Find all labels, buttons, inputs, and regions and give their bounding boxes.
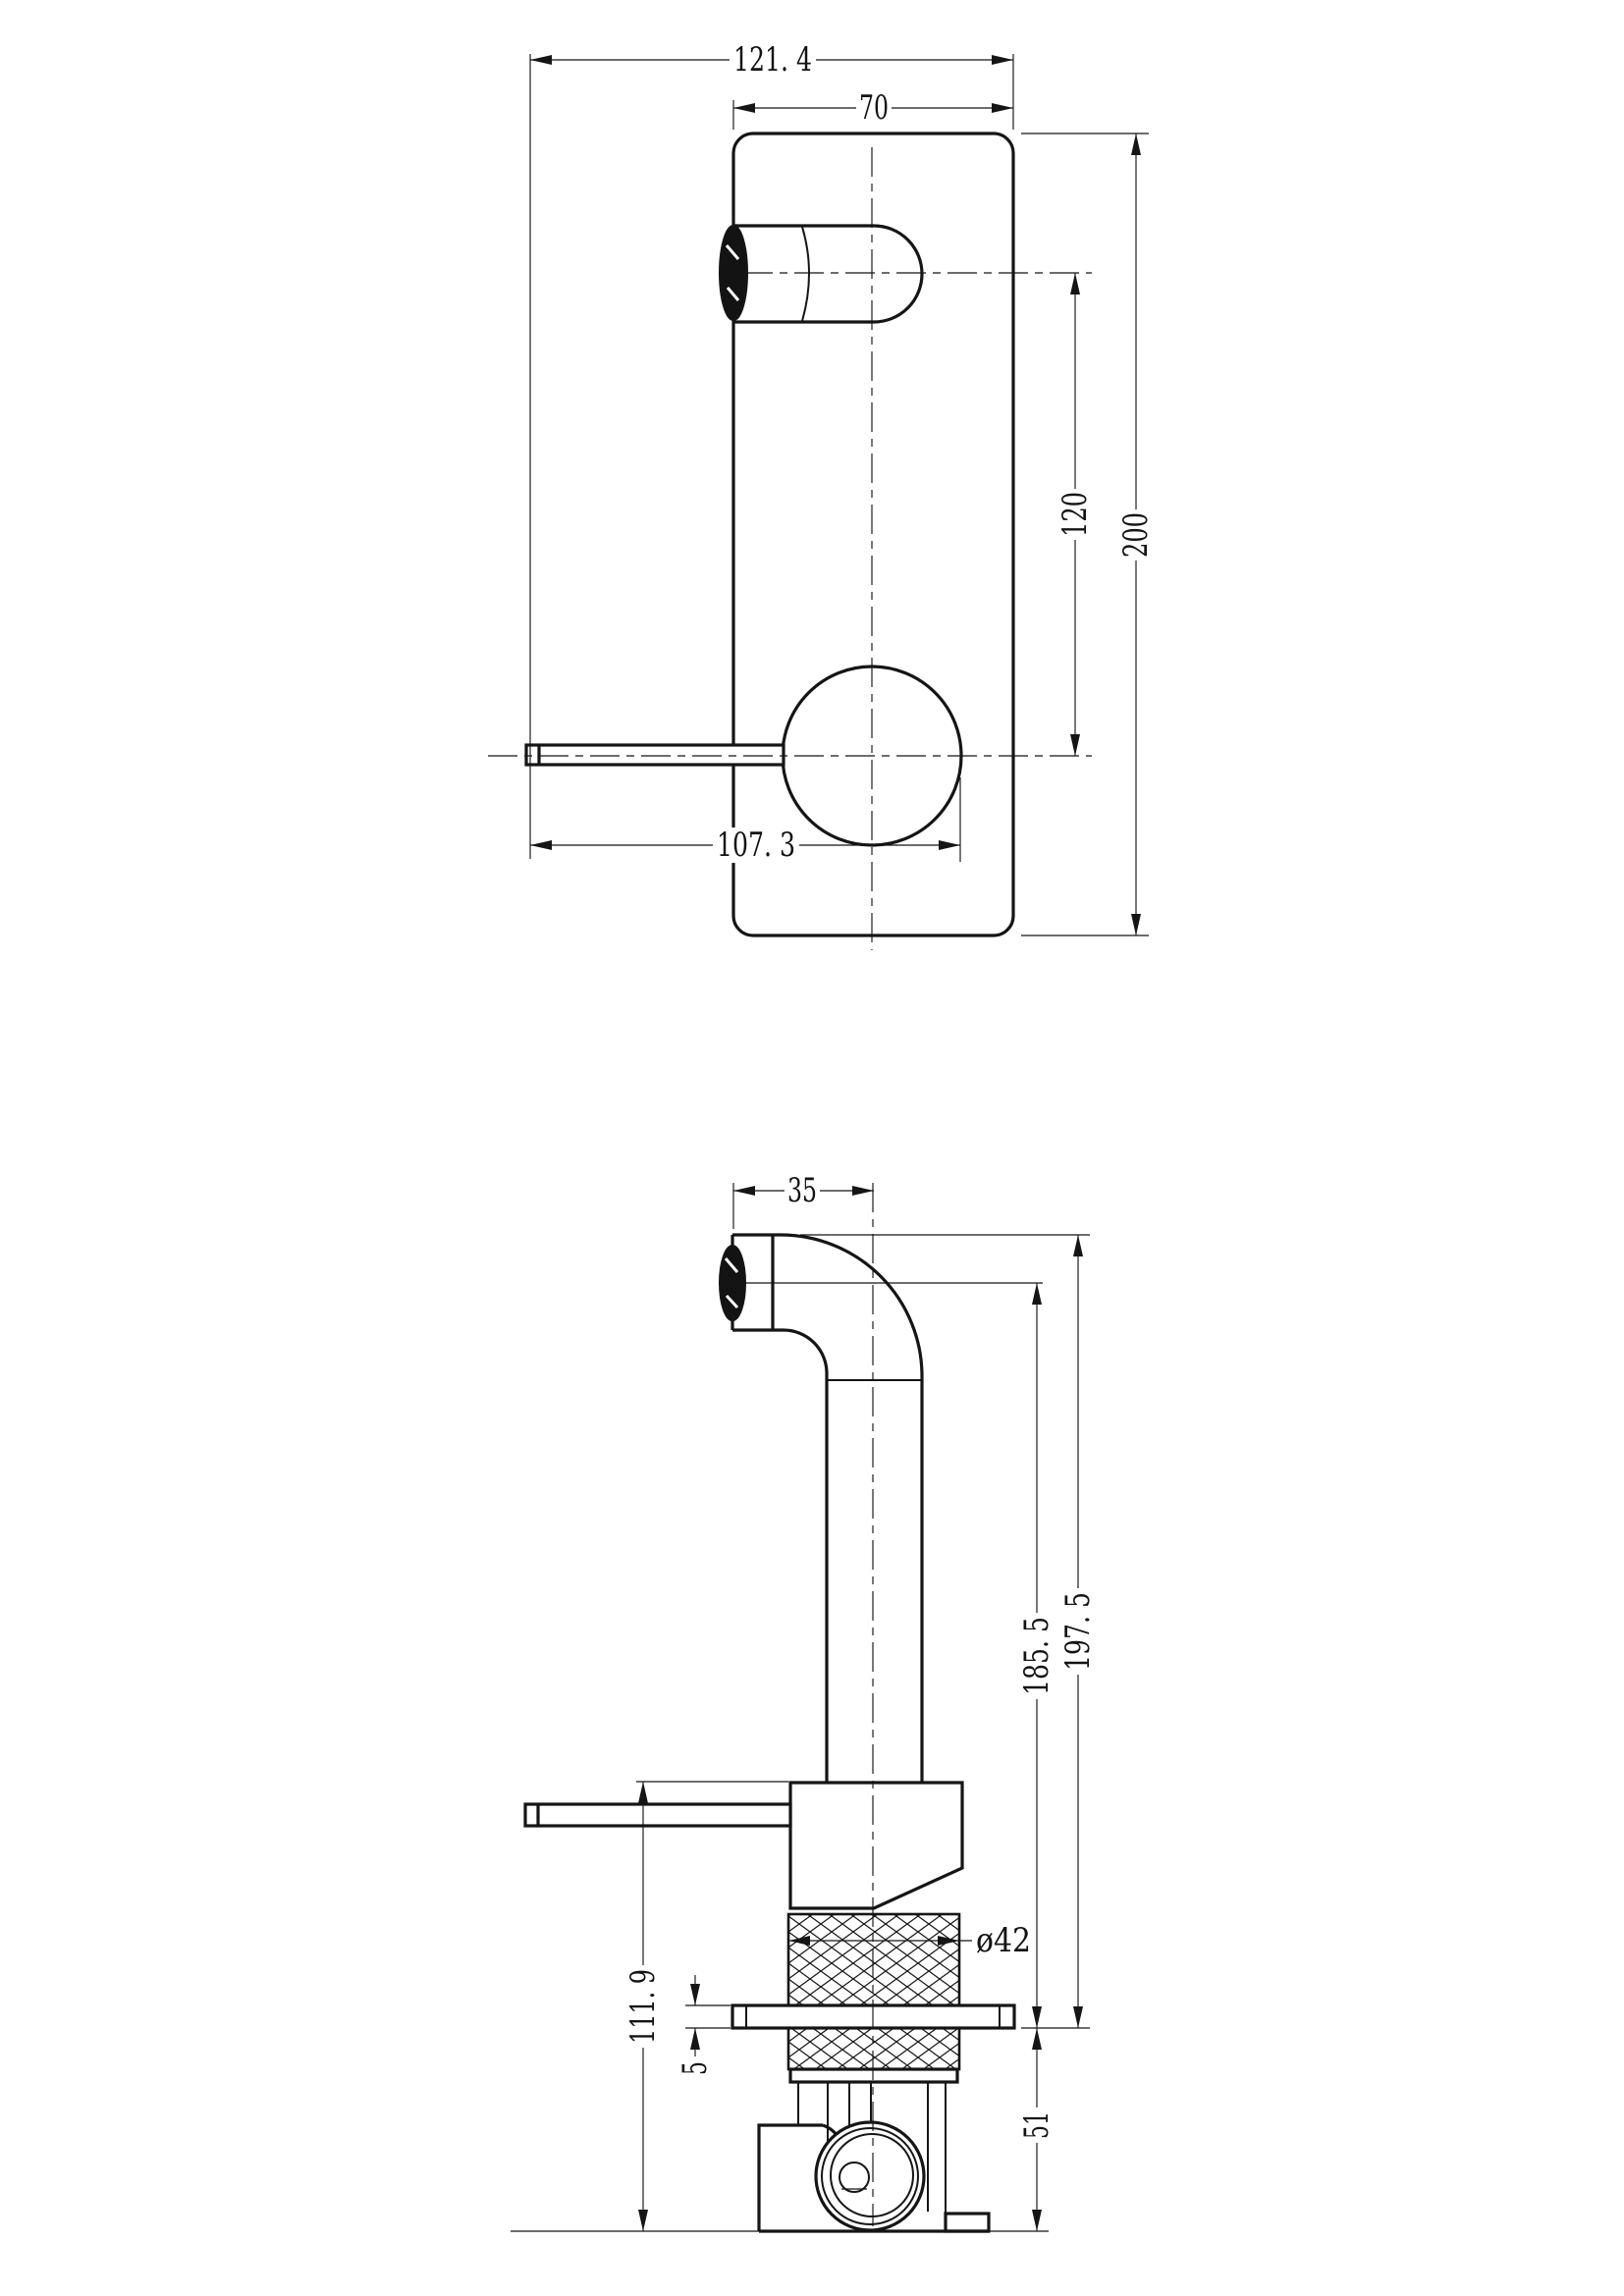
dim-rear-depth: 51	[1017, 2108, 1056, 2143]
dim-spout-projection-label: 35	[787, 1171, 817, 1210]
sleeve-base-ring	[790, 2069, 957, 2082]
cartridge-circle-outer	[816, 2122, 924, 2230]
dim-valve-height: 111. 9	[623, 1965, 663, 2048]
cartridge-keyway	[839, 2163, 869, 2192]
dim-spout-to-handle: 120	[1056, 489, 1095, 540]
dim-plate-thickness: 5	[676, 2056, 715, 2080]
dim-handle-reach: 107. 3	[713, 826, 799, 865]
dim-trim-diameter-label: ø42	[976, 1921, 1031, 1960]
aerator-face-front	[720, 226, 747, 320]
dim-spout-projection: 35	[785, 1171, 820, 1210]
front-view: 121. 4 70 120 200 107. 3	[488, 40, 1156, 950]
dim-height-spout-center-label: 185. 5	[1017, 1617, 1056, 1695]
knurled-sleeve-upper	[788, 1914, 959, 2005]
dim-spout-to-handle-label: 120	[1056, 492, 1095, 537]
dim-height-spout-top: 197. 5	[1058, 1588, 1098, 1675]
handle-lever-front	[526, 745, 784, 765]
dim-overall-width: 121. 4	[730, 40, 816, 80]
dim-handle-reach-label: 107. 3	[717, 826, 795, 865]
side-view: 35 197. 5 185. 5 ø42 111. 9 5 51	[511, 1171, 1098, 2231]
spout-inner-profile	[732, 1330, 827, 1783]
technical-drawing-canvas: 121. 4 70 120 200 107. 3	[0, 0, 1624, 2296]
dim-plate-width: 70	[856, 88, 892, 128]
dim-plate-height: 200	[1116, 509, 1156, 561]
drawing-sheet: 121. 4 70 120 200 107. 3	[0, 0, 1624, 2296]
dim-height-spout-center: 185. 5	[1017, 1613, 1056, 1699]
dim-plate-thickness-label: 5	[676, 2061, 715, 2075]
dim-valve-height-label: 111. 9	[623, 1969, 663, 2044]
valve-body-side	[790, 1783, 962, 1908]
dim-height-spout-top-label: 197. 5	[1058, 1592, 1098, 1671]
dim-plate-width-label: 70	[859, 88, 889, 128]
dim-plate-height-label: 200	[1116, 512, 1156, 558]
spout-body-mask	[733, 226, 922, 322]
dim-trim-diameter: ø42	[972, 1921, 1035, 1960]
bracket-block-mask	[759, 2125, 823, 2231]
knurled-sleeve-lower	[788, 2028, 959, 2069]
dim-rear-depth-label: 51	[1017, 2111, 1056, 2139]
handle-lever-side	[525, 1804, 790, 1826]
dim-overall-width-label: 121. 4	[733, 40, 812, 80]
bracket-foot	[946, 2214, 989, 2231]
